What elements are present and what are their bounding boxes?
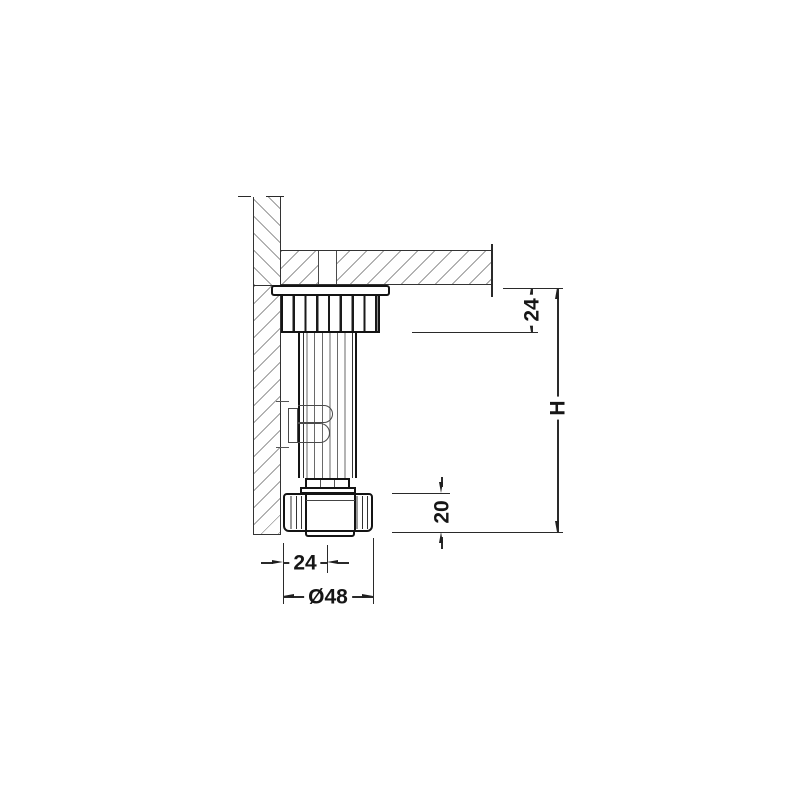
- plinth-clip-prong-lower: [298, 423, 330, 443]
- ext-line-axis: [327, 545, 328, 573]
- arrowhead-up: [439, 532, 443, 543]
- base-ribs-left: [286, 496, 305, 529]
- arrowhead-left: [283, 594, 294, 598]
- plinth-panel-section: [253, 285, 281, 535]
- foot-flange: [271, 285, 390, 296]
- cabinet-bottom-panel-section: [281, 250, 492, 285]
- tube-inner-wall-right: [352, 333, 353, 478]
- ext-line-base-top: [392, 493, 450, 494]
- dim-stem-24-right: [338, 562, 349, 563]
- cabinet-side-panel-section: [253, 197, 281, 285]
- dim-label-edge-to-axis: 24: [289, 552, 320, 575]
- dim-label-socket-height: 24: [521, 294, 544, 325]
- wall-break-line-left: [238, 196, 251, 197]
- foot-socket: [281, 294, 380, 333]
- base-bottom-lip: [305, 530, 355, 537]
- ext-line-socket-bottom: [412, 332, 538, 333]
- plinth-clip-prong-upper: [298, 405, 333, 423]
- clip-mark-lower: [276, 447, 289, 448]
- arrowhead-down: [555, 521, 559, 532]
- panel-cut-edge: [491, 244, 492, 297]
- dim-label-total-height: H: [547, 396, 570, 419]
- arrowhead-down: [439, 482, 443, 493]
- dim-label-base-diameter: Ø48: [304, 586, 352, 609]
- clip-mark-upper: [276, 401, 289, 402]
- wall-break-line-right: [266, 196, 284, 197]
- plinth-clip-body: [288, 408, 298, 443]
- technical-drawing-canvas: 24 H 20 24 Ø48: [0, 0, 800, 800]
- arrowhead-right: [362, 594, 373, 598]
- arrowhead-left: [327, 560, 338, 564]
- base-center-line: [306, 500, 355, 501]
- arrowhead-up: [555, 288, 559, 299]
- ext-line-base-right: [373, 538, 374, 604]
- arrowhead-right: [272, 560, 283, 564]
- mounting-hole: [318, 251, 337, 283]
- ext-line-floor: [392, 532, 563, 533]
- dim-label-base-height: 20: [431, 496, 454, 527]
